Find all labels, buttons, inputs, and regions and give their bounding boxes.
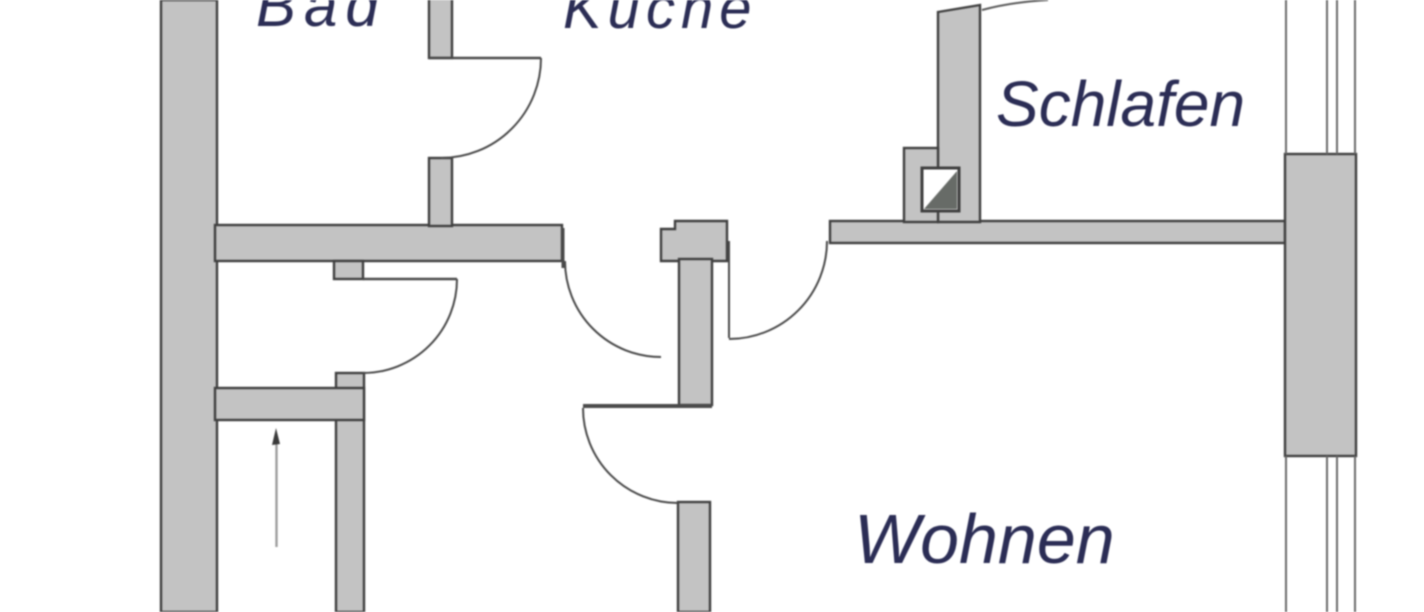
svg-text:Bad: Bad [256, 0, 387, 39]
svg-text:Küche: Küche [563, 0, 757, 41]
svg-text:Wohnen: Wohnen [854, 500, 1115, 578]
svg-text:Schlafen: Schlafen [996, 68, 1245, 140]
